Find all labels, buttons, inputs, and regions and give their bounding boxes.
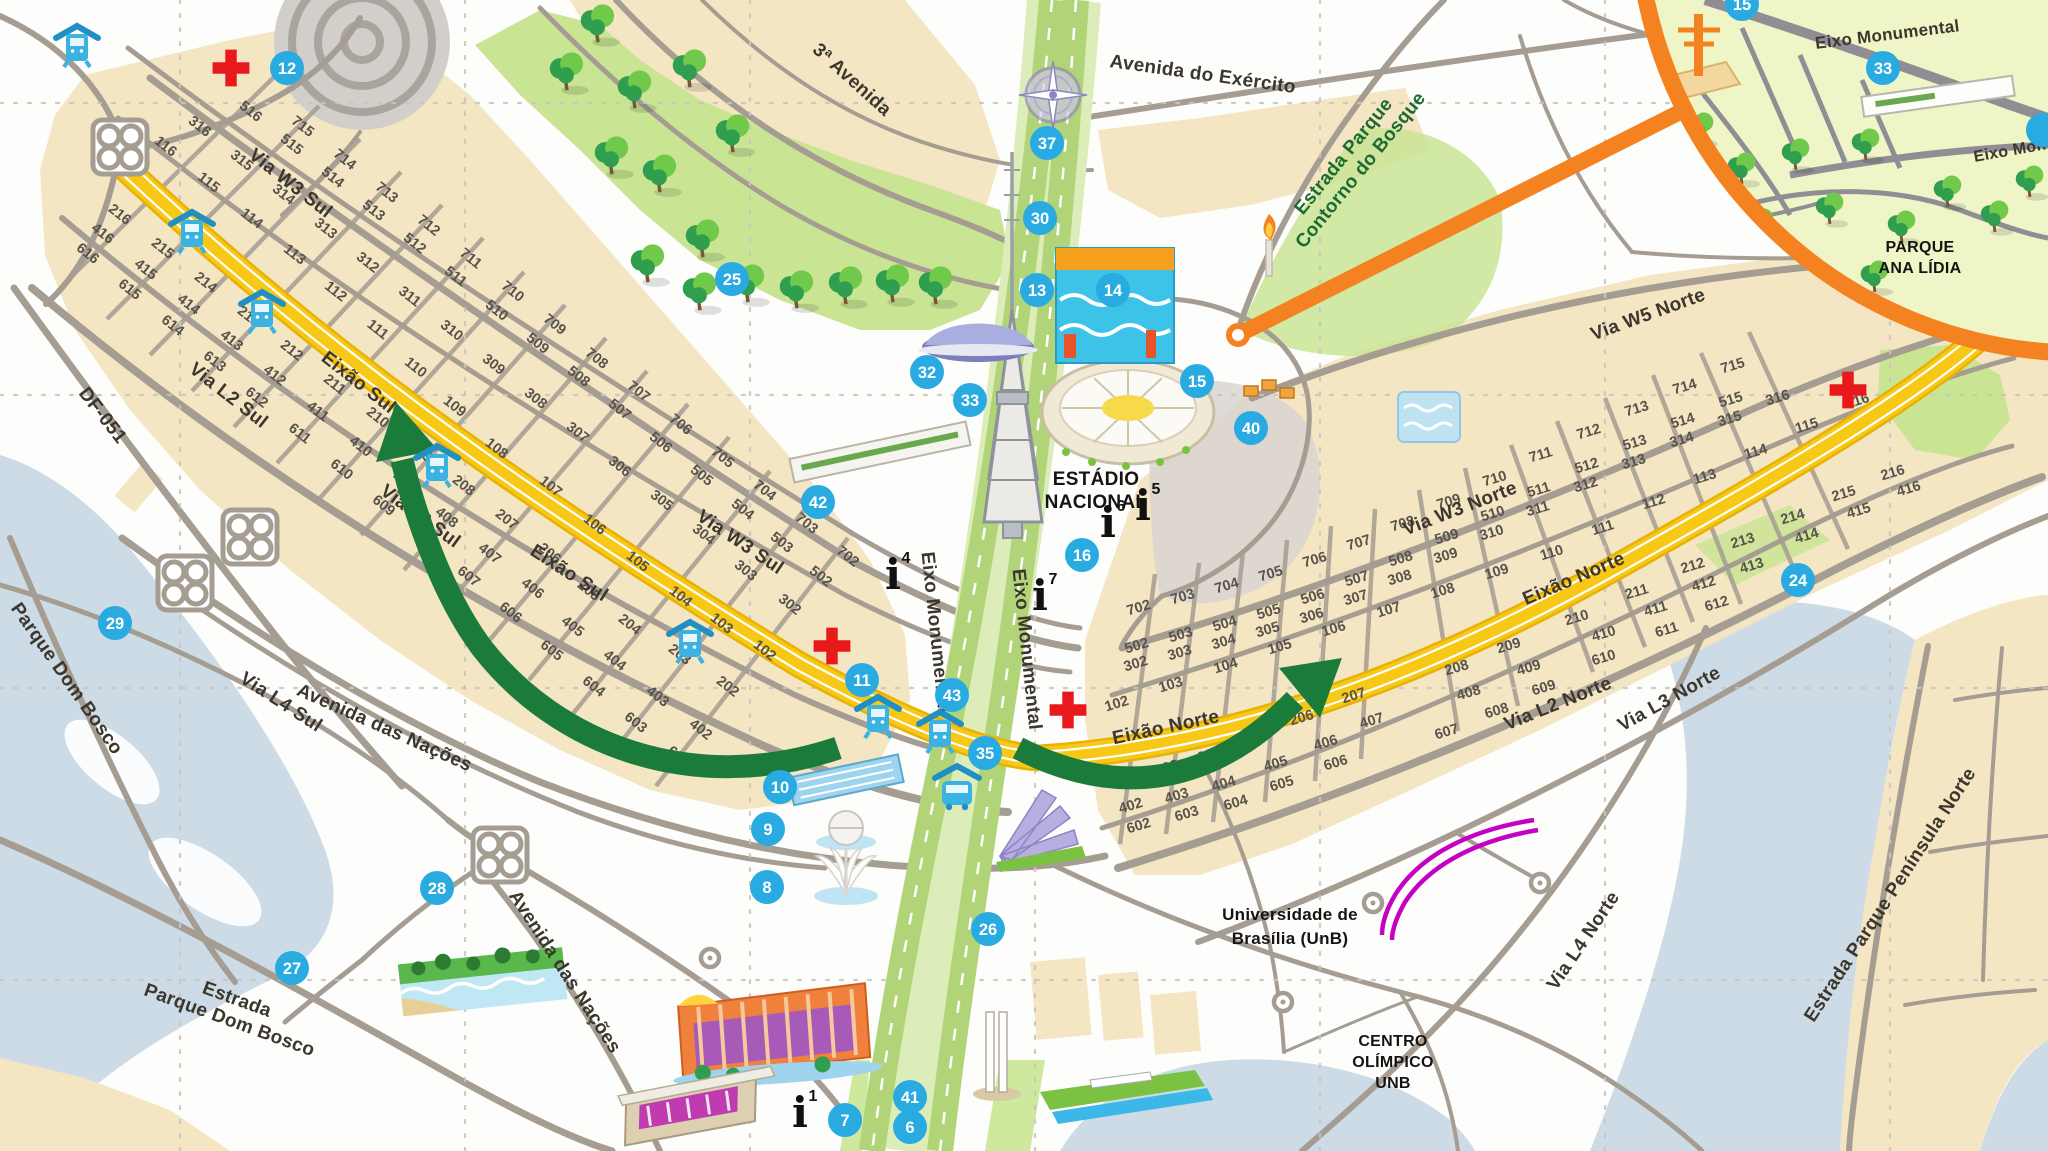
poi-marker-7[interactable]: 7: [828, 1103, 862, 1137]
marker-number: 41: [901, 1089, 919, 1107]
poi-marker-11[interactable]: 11: [845, 663, 879, 697]
poi-marker-12[interactable]: 12: [270, 51, 304, 85]
pool-illustration: [1398, 392, 1460, 442]
marker-number: 42: [809, 494, 827, 512]
marker-number: 14: [1104, 282, 1123, 300]
roundabout-icon: [1274, 993, 1292, 1011]
poi-marker-16[interactable]: 16: [1065, 538, 1099, 572]
marker-number: 32: [918, 364, 936, 382]
poi-marker-28[interactable]: 28: [420, 871, 454, 905]
marker-number: 9: [763, 821, 772, 839]
poi-marker-35[interactable]: 35: [968, 736, 1002, 770]
poi-marker-14[interactable]: 14: [1096, 273, 1130, 307]
roundabout-icon: [1364, 894, 1382, 912]
info-number: 1: [809, 1088, 818, 1105]
poi-marker-33[interactable]: 33: [953, 383, 987, 417]
poi-marker-9[interactable]: 9: [751, 812, 785, 846]
poi-marker-33[interactable]: 33: [1866, 51, 1900, 85]
marker-number: 26: [979, 921, 997, 939]
brasilia-tourist-map: 7157147137127117107097087077067057047037…: [0, 0, 2048, 1151]
info-glyph: i: [885, 550, 901, 599]
poi-marker-15[interactable]: 15: [1180, 364, 1214, 398]
poi-marker-30[interactable]: 30: [1023, 201, 1057, 235]
roundabout-icon: [1531, 874, 1549, 892]
poi-marker-25[interactable]: 25: [715, 262, 749, 296]
long-building-illustration: [789, 422, 970, 483]
poi-marker-26[interactable]: 26: [971, 912, 1005, 946]
marker-number: 6: [905, 1119, 914, 1137]
marker-number: 37: [1038, 135, 1056, 153]
marker-number: 33: [961, 392, 979, 410]
marker-number: 11: [853, 672, 870, 690]
poi-marker-29[interactable]: 29: [98, 606, 132, 640]
marker-number: 35: [976, 745, 994, 763]
tree-icon: [631, 244, 670, 287]
poi-marker-42[interactable]: 42: [801, 485, 835, 519]
hospital-cross-icon: [1050, 692, 1087, 729]
poi-marker-24[interactable]: 24: [1781, 563, 1815, 597]
info-number: 7: [1049, 571, 1058, 588]
poi-marker-8[interactable]: 8: [750, 870, 784, 904]
metro-station-icon: [56, 26, 98, 67]
info-point-icon[interactable]: i7: [1032, 571, 1058, 620]
poi-marker-37[interactable]: 37: [1030, 126, 1064, 160]
roundabout-icon: [701, 949, 719, 967]
marker-number: 28: [428, 880, 446, 898]
marker-number: 16: [1073, 547, 1091, 565]
marker-number: 15: [1733, 0, 1751, 14]
marker-number: 25: [723, 271, 741, 289]
poi-marker-6[interactable]: 6: [893, 1110, 927, 1144]
marker-number: 43: [943, 687, 961, 705]
map-svg: 7157147137127117107097087077067057047037…: [0, 0, 2048, 1151]
marker-number: 30: [1031, 210, 1049, 228]
cloverleaf-interchange-icon: [158, 556, 212, 610]
info-number: 4: [902, 550, 911, 567]
marker-number: 29: [106, 615, 124, 633]
marker-number: 27: [283, 960, 301, 978]
poi-marker-43[interactable]: 43: [935, 678, 969, 712]
marker-number: 8: [762, 879, 771, 897]
area-label: ESTÁDIONACIONAL: [1045, 468, 1148, 513]
road-label: Avenida do Exército: [1108, 51, 1297, 98]
magenta-road: [1382, 820, 1538, 940]
cloverleaf-interchange-icon: [473, 828, 527, 882]
marker-number: 15: [1188, 373, 1206, 391]
marker-number: 24: [1789, 572, 1808, 590]
poi-marker-27[interactable]: 27: [275, 951, 309, 985]
poi-marker-40[interactable]: 40: [1234, 411, 1268, 445]
info-glyph: i: [792, 1088, 808, 1137]
cathedral-illustration: [814, 848, 878, 905]
info-glyph: i: [1032, 571, 1048, 620]
poi-marker-13[interactable]: 13: [1020, 273, 1054, 307]
road-label: Via L4 Norte: [1543, 888, 1624, 994]
poi-marker-32[interactable]: 32: [910, 355, 944, 389]
cloverleaf-interchange-icon: [223, 510, 277, 564]
fan-building-illustration: [996, 790, 1086, 872]
marker-number: 12: [278, 60, 296, 78]
marker-number: 13: [1028, 282, 1046, 300]
museum-dome-illustration: [816, 811, 876, 850]
marker-number: 7: [840, 1112, 849, 1130]
marker-number: 10: [771, 779, 789, 797]
info-point-icon[interactable]: i1: [792, 1088, 818, 1137]
marker-number: 33: [1874, 60, 1892, 78]
info-number: 5: [1152, 481, 1161, 498]
cloverleaf-interchange-icon: [93, 120, 147, 174]
poi-marker-41[interactable]: 41: [893, 1080, 927, 1114]
marker-number: 40: [1242, 420, 1260, 438]
poi-marker-10[interactable]: 10: [763, 770, 797, 804]
arched-palace-illustration: [667, 982, 883, 1090]
